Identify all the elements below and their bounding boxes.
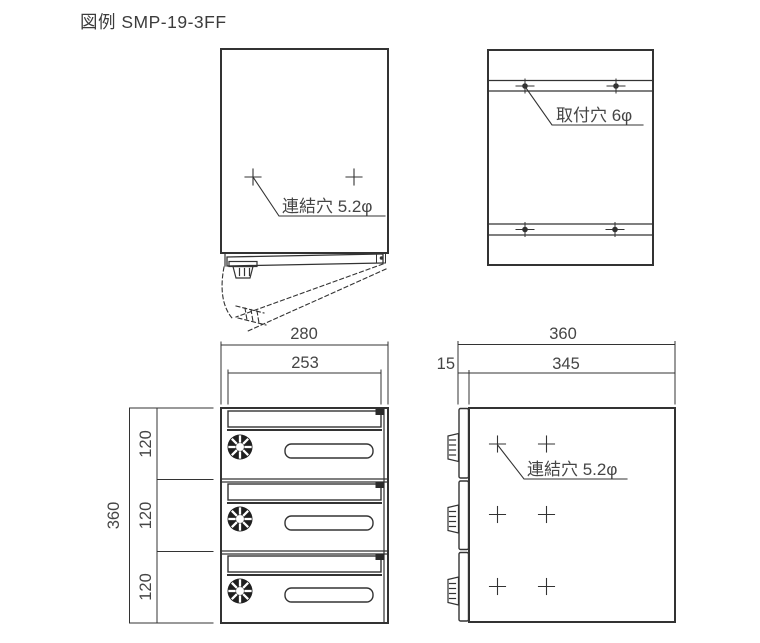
mail-slot[interactable] bbox=[228, 556, 381, 572]
dim-overall-width: 280 bbox=[290, 325, 318, 343]
slot-end-cap bbox=[376, 554, 385, 561]
dial-lock[interactable] bbox=[228, 435, 253, 460]
mounting-rails bbox=[488, 81, 653, 236]
door-fronts bbox=[459, 409, 469, 622]
back-view-mount-hole-label: 取付穴 6φ bbox=[556, 106, 632, 125]
door-latches bbox=[448, 434, 459, 606]
side-view-link-hole-label: 連結穴 5.2φ bbox=[527, 460, 617, 479]
nameplate-window bbox=[285, 444, 373, 458]
top-view-link-hole-label: 連結穴 5.2φ bbox=[282, 197, 372, 216]
link-hole-cross bbox=[539, 579, 555, 595]
compartment-3 bbox=[228, 554, 385, 604]
back-view-body-outline bbox=[488, 50, 653, 265]
side-view: 360 15 345 bbox=[437, 325, 675, 622]
door-front bbox=[459, 553, 469, 622]
nameplate-window bbox=[285, 516, 373, 530]
front-view: 280 253 360 120 120 120 bbox=[105, 325, 388, 623]
dim-row-height-1: 120 bbox=[137, 430, 155, 458]
dim-overall-depth: 360 bbox=[549, 325, 577, 343]
link-hole-cross bbox=[539, 436, 555, 452]
dim-door-offset: 15 bbox=[437, 355, 455, 373]
door-latch bbox=[229, 262, 257, 279]
mail-slot[interactable] bbox=[228, 411, 381, 427]
compartment-2 bbox=[228, 482, 385, 532]
nameplate-window bbox=[285, 588, 373, 602]
door-front bbox=[459, 409, 469, 479]
dial-lock[interactable] bbox=[228, 579, 253, 604]
link-hole-cross bbox=[490, 579, 506, 595]
back-view: 取付穴 6φ bbox=[488, 50, 653, 265]
mail-slot[interactable] bbox=[228, 484, 381, 500]
dim-inner-width: 253 bbox=[291, 354, 319, 372]
dim-row-height-2: 120 bbox=[137, 502, 155, 530]
slot-end-cap bbox=[376, 482, 385, 489]
link-hole-cross-right bbox=[346, 169, 362, 185]
link-hole-cross bbox=[490, 507, 506, 523]
door-latch bbox=[448, 434, 459, 462]
link-hole-cross bbox=[490, 436, 506, 452]
door-closed bbox=[227, 254, 383, 266]
top-view-body-outline bbox=[221, 49, 388, 253]
dim-row-height-3: 120 bbox=[137, 573, 155, 601]
door-front bbox=[459, 481, 469, 550]
door-latch bbox=[448, 505, 459, 533]
front-width-dims bbox=[221, 342, 388, 404]
dim-overall-height: 360 bbox=[105, 502, 123, 530]
slot-end-cap bbox=[376, 409, 385, 416]
link-hole-cross bbox=[539, 507, 555, 523]
dial-lock[interactable] bbox=[228, 507, 253, 532]
dim-body-depth: 345 bbox=[552, 355, 580, 373]
drawing-page: 図例 SMP-19-3FF 連結穴 5.2φ bbox=[0, 0, 760, 643]
door-latch bbox=[448, 577, 459, 605]
top-view: 連結穴 5.2φ bbox=[221, 49, 388, 331]
compartments bbox=[228, 409, 385, 604]
door-hinge-pin bbox=[380, 256, 384, 260]
mounting-holes bbox=[516, 79, 625, 237]
compartment-1 bbox=[228, 409, 385, 460]
door-open-dashed bbox=[222, 264, 386, 331]
technical-drawing: 連結穴 5.2φ bbox=[0, 0, 760, 643]
